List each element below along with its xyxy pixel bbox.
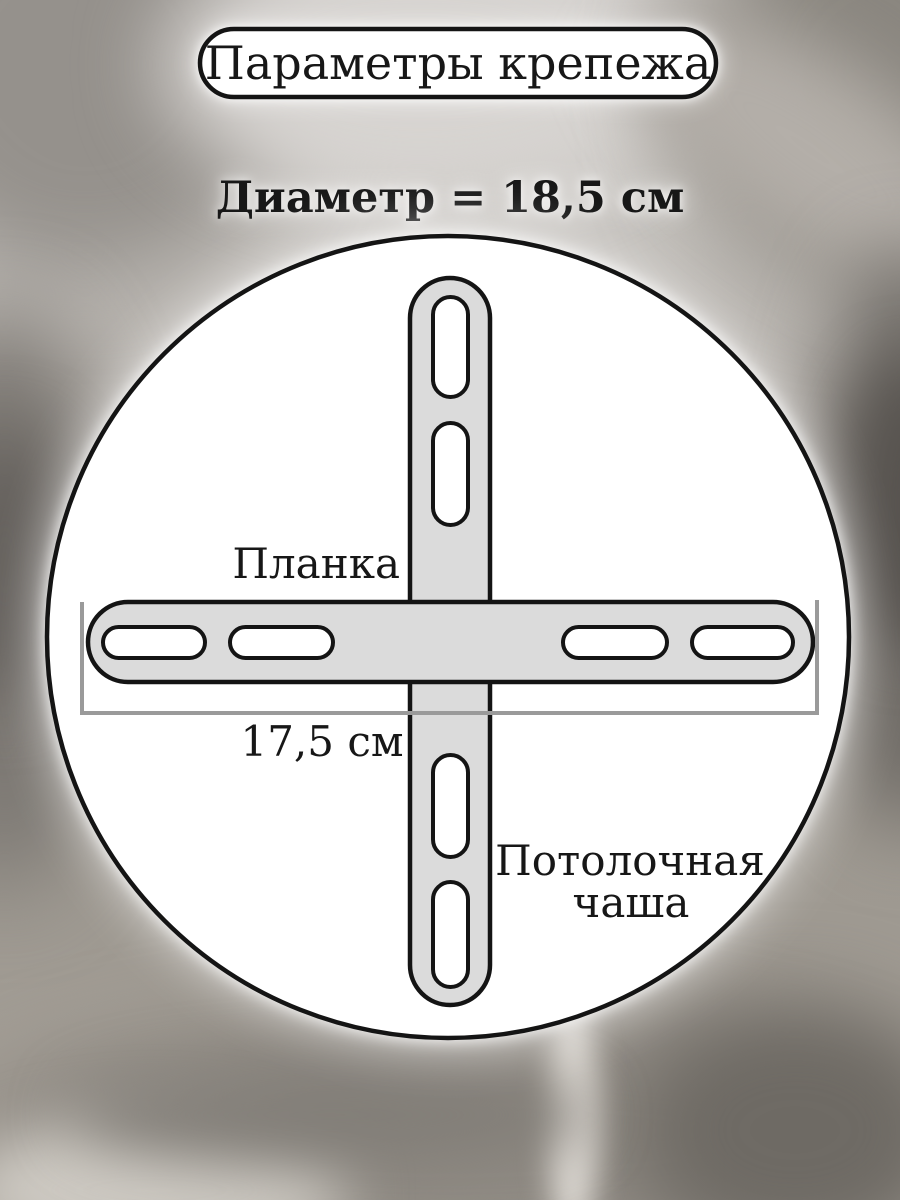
slot-hole-left-inner — [230, 627, 333, 658]
product-infographic: Параметры крепежа Диаметр = 18,5 см План… — [0, 0, 900, 1200]
title-text: Параметры крепежа — [205, 36, 712, 90]
slot-hole-top-inner — [433, 423, 468, 525]
slot-hole-bottom-outer — [433, 882, 468, 987]
cup-label-line2: чаша — [573, 878, 690, 927]
slot-hole-bottom-inner — [433, 755, 468, 857]
mount-diagram: Параметры крепежа Диаметр = 18,5 см План… — [0, 0, 900, 1200]
plank-length-label: 17,5 см — [240, 717, 403, 766]
diameter-label: Диаметр = 18,5 см — [216, 173, 685, 223]
plank-label: Планка — [232, 539, 400, 588]
slot-hole-right-outer — [692, 627, 793, 658]
slot-hole-top-outer — [433, 297, 468, 397]
slot-hole-left-outer — [103, 627, 205, 658]
slot-hole-right-inner — [563, 627, 667, 658]
